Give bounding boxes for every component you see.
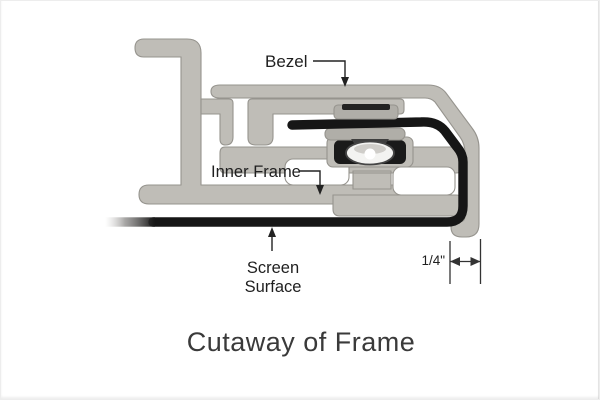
diagram-canvas: Bezel Inner Frame Screen Surface 1/4" Cu… [1,1,600,400]
snap-dome-flange [325,128,405,140]
bezel-callout: Bezel [265,52,349,87]
diagram-title: Cutaway of Frame [187,327,416,357]
cutout-right [393,167,455,195]
dimension-callout: 1/4" [421,239,480,284]
inner-frame-web1 [201,99,233,145]
dimension-label: 1/4" [421,253,445,268]
screen-surface-callout: Screen Surface [245,227,302,296]
screen-surface-fade [105,217,155,226]
frame-cutaway-diagram: Bezel Inner Frame Screen Surface 1/4" Cu… [0,0,600,400]
screen-surface-label-line1: Screen [247,259,299,277]
screen-surface-label-line2: Surface [245,278,302,296]
snap-cap-stripe [342,104,390,110]
inner-frame-label: Inner Frame [211,163,301,181]
bezel-label: Bezel [265,52,308,71]
snap-roller-highlight [365,149,376,160]
